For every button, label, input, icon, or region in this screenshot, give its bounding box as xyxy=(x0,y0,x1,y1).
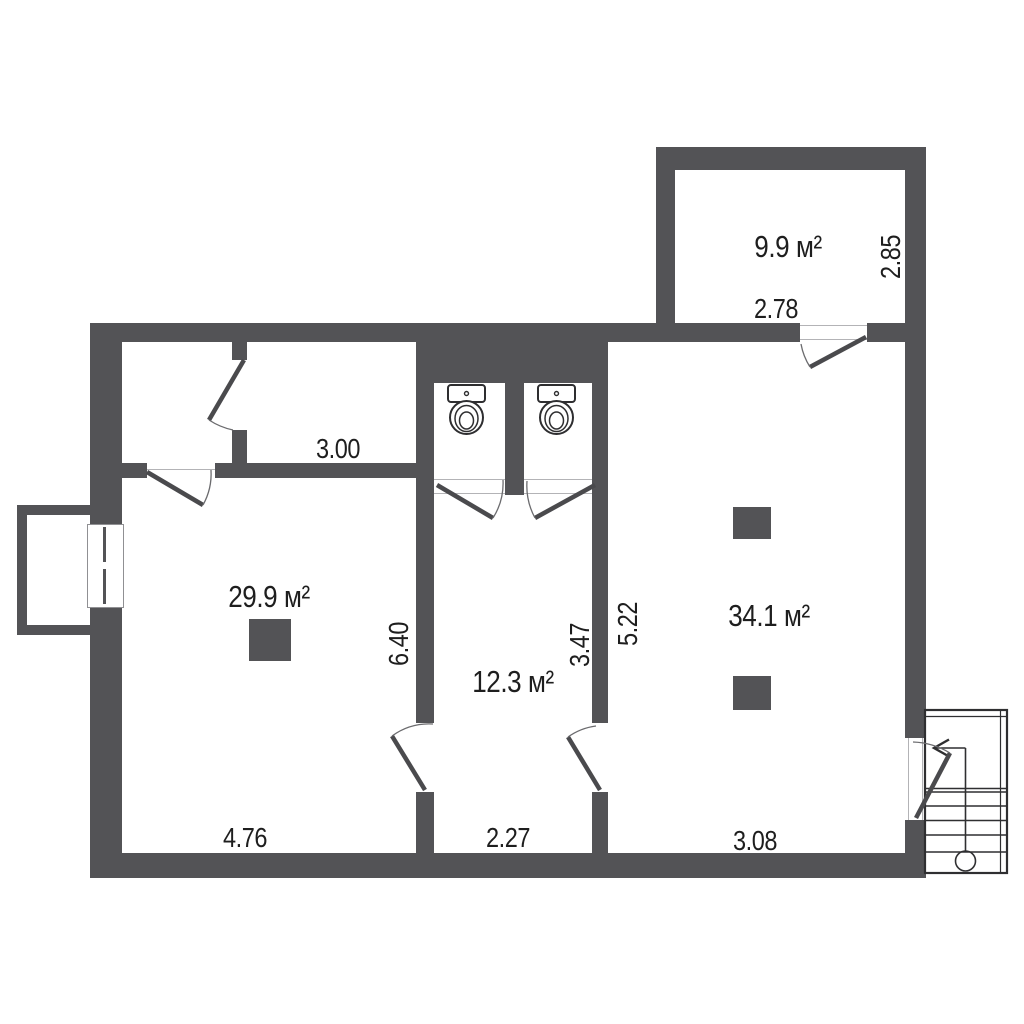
door-wc-right xyxy=(527,481,595,518)
door-left-middle-room xyxy=(392,724,433,790)
room-area-label-annex: 9.9 м² xyxy=(754,229,821,265)
floor-plan: 9.9 м² 2.78 2.85 3.00 29.9 м² 6.40 4.76 … xyxy=(0,0,1024,1024)
door-topleft-rooms xyxy=(209,360,244,430)
door-wc-left xyxy=(437,480,503,518)
door-middle-right-room xyxy=(568,726,600,790)
toilet-icon xyxy=(448,385,485,434)
room-depth-label-right: 5.22 xyxy=(612,602,644,646)
door-entry-left-room xyxy=(147,470,211,505)
room-width-label-top-room: 3.00 xyxy=(316,433,360,465)
room-width-label-left: 4.76 xyxy=(223,822,267,854)
toilet-icon xyxy=(538,385,575,434)
door-annex xyxy=(801,337,866,367)
room-area-label-left: 29.9 м² xyxy=(228,579,310,615)
room-width-label-middle: 2.27 xyxy=(486,822,530,854)
room-area-label-middle: 12.3 м² xyxy=(472,664,554,700)
room-area-label-right: 34.1 м² xyxy=(728,598,810,634)
room-width-label-right: 3.08 xyxy=(733,825,777,857)
room-width-label-annex: 2.78 xyxy=(754,293,798,325)
plan-drawing-layer xyxy=(0,0,1024,1024)
room-depth-label-left: 6.40 xyxy=(383,622,415,666)
room-depth-label-middle: 3.47 xyxy=(564,623,596,667)
room-depth-label-annex: 2.85 xyxy=(875,235,907,279)
